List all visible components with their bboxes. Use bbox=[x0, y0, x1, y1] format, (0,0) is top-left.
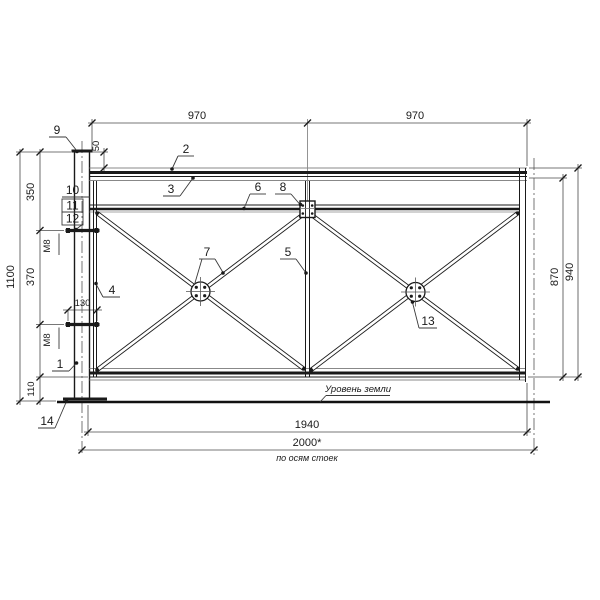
dim-2000: 2000* bbox=[293, 437, 322, 449]
callout-3: 3 bbox=[168, 182, 175, 196]
dim-bay-left: 970 bbox=[188, 110, 206, 122]
callout-texts: 9 2 3 6 8 7 5 4 1 13 14 10 11 12 bbox=[40, 123, 435, 428]
center-gusset-square bbox=[300, 201, 315, 218]
callout-5: 5 bbox=[285, 245, 292, 259]
callout-dots bbox=[65, 150, 415, 404]
bottom-rail bbox=[90, 369, 526, 381]
dimension-ticks bbox=[17, 120, 582, 454]
dim-370: 370 bbox=[25, 268, 37, 286]
callout-1: 1 bbox=[57, 357, 64, 371]
callout-9: 9 bbox=[54, 123, 61, 137]
callout-12: 12 bbox=[66, 212, 80, 226]
dim-110: 110 bbox=[26, 381, 37, 396]
dim-130: 130 bbox=[75, 298, 91, 309]
axis-centerlines bbox=[82, 141, 534, 456]
top-rail bbox=[90, 168, 528, 181]
callout-13: 13 bbox=[421, 314, 435, 328]
brace-weld-dots bbox=[95, 211, 520, 372]
callout-8: 8 bbox=[280, 180, 287, 194]
dim-870: 870 bbox=[549, 268, 561, 286]
callout-10: 10 bbox=[66, 183, 80, 197]
dim-940: 940 bbox=[564, 263, 576, 281]
frame-verticals bbox=[94, 168, 526, 382]
axis-note: по осям стоек bbox=[276, 453, 338, 463]
bolt-label-lower: М8 bbox=[42, 333, 53, 346]
callout-14: 14 bbox=[40, 414, 54, 428]
dim-post-height: 1100 bbox=[5, 265, 17, 289]
dim-top-offset: 50 bbox=[91, 141, 102, 152]
bolt-label-upper: М8 bbox=[42, 239, 53, 252]
callout-2: 2 bbox=[183, 142, 190, 156]
dim-350: 350 bbox=[25, 183, 37, 201]
upper-clamp bbox=[66, 228, 100, 233]
dim-bay-right: 970 bbox=[406, 110, 424, 122]
callout-6: 6 bbox=[255, 180, 262, 194]
lower-clamp bbox=[66, 322, 100, 327]
drawing-canvas: 970 970 50 1100 350 370 110 130 870 940 … bbox=[0, 0, 600, 600]
dim-1940: 1940 bbox=[295, 419, 319, 431]
fence-elevation-drawing: 970 970 50 1100 350 370 110 130 870 940 … bbox=[0, 0, 600, 600]
x-braces bbox=[95, 211, 520, 372]
ground-level-label: Уровень земли bbox=[324, 384, 392, 395]
callout-4: 4 bbox=[109, 283, 116, 297]
callout-7: 7 bbox=[204, 245, 211, 259]
callout-11: 11 bbox=[66, 199, 79, 213]
dimension-texts: 970 970 50 1100 350 370 110 130 870 940 … bbox=[5, 110, 576, 463]
